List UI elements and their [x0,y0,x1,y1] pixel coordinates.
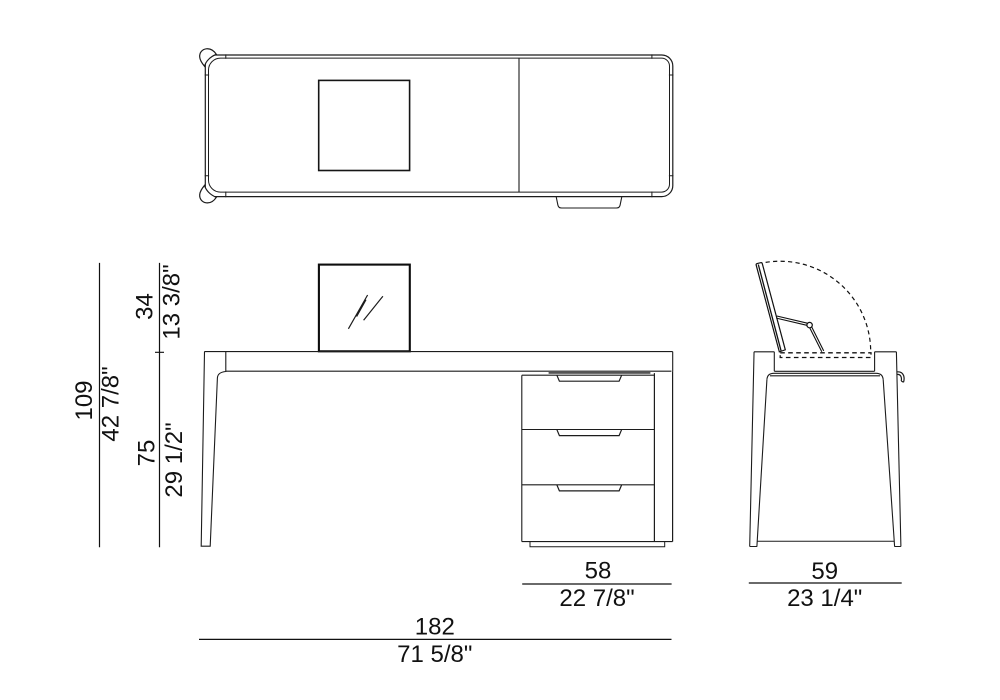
svg-text:42 7/8": 42 7/8" [97,366,124,441]
svg-text:109: 109 [71,380,98,420]
svg-text:29 1/2": 29 1/2" [161,422,188,497]
svg-text:59: 59 [811,558,838,585]
svg-text:75: 75 [134,440,161,467]
svg-text:13 3/8": 13 3/8" [158,264,185,339]
svg-text:58: 58 [585,558,612,585]
svg-text:71 5/8": 71 5/8" [397,641,472,668]
svg-text:182: 182 [415,613,455,640]
svg-text:23 1/4": 23 1/4" [787,585,862,612]
svg-text:22 7/8": 22 7/8" [559,585,634,612]
svg-text:34: 34 [131,293,158,320]
